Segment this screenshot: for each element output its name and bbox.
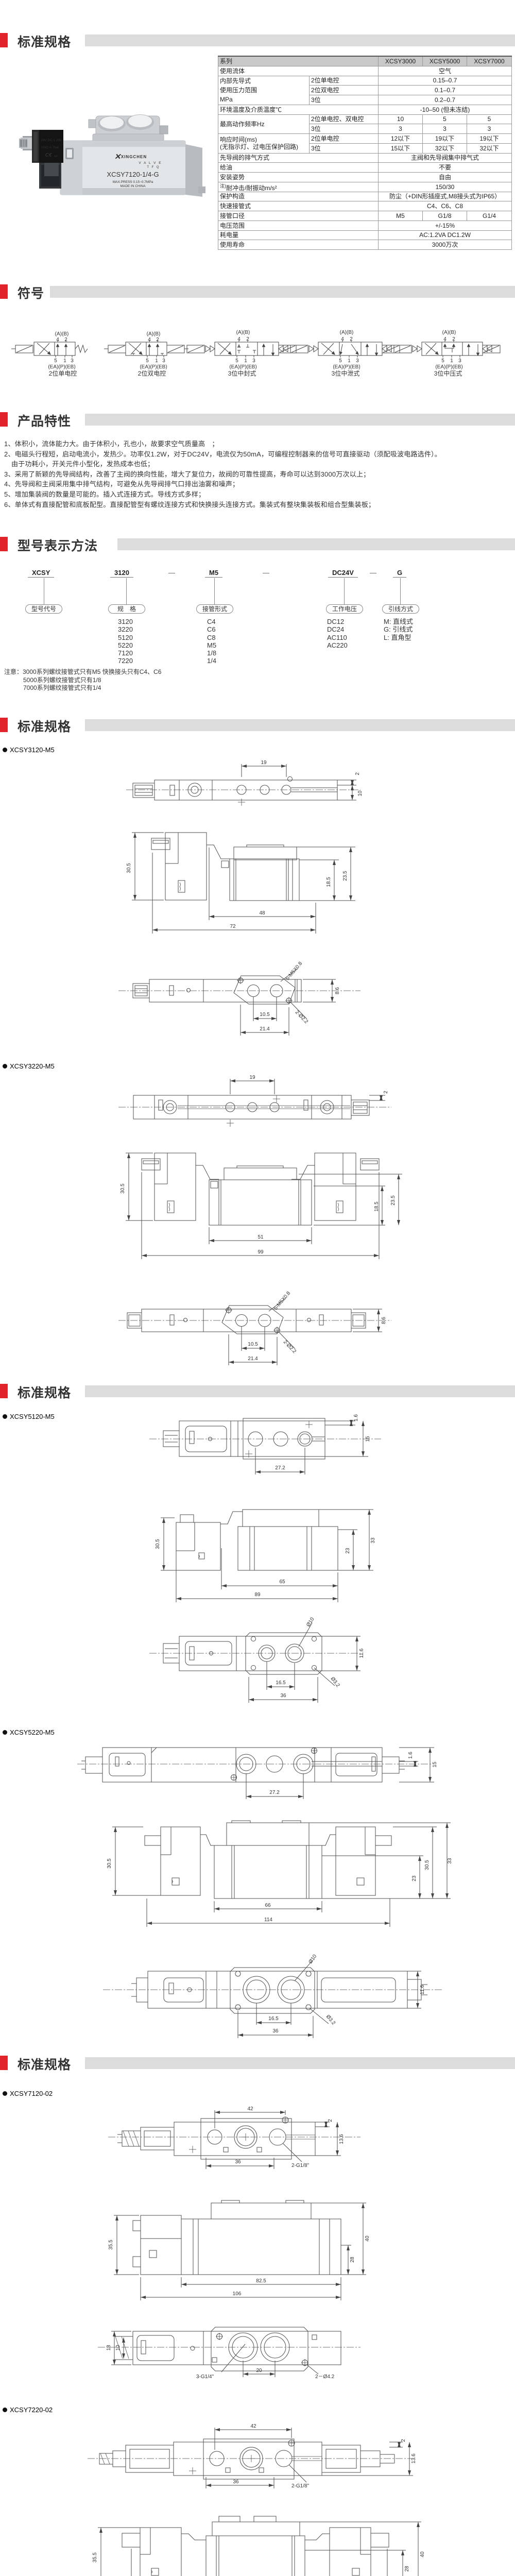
- svg-text:Ø3.2: Ø3.2: [325, 2014, 337, 2026]
- svg-text:(EA)(P)(EB): (EA)(P)(EB): [48, 364, 75, 370]
- svg-text:1: 1: [63, 358, 66, 364]
- svg-text:(A)(B): (A)(B): [442, 330, 456, 335]
- svg-text:30.5: 30.5: [424, 1860, 430, 1870]
- svg-text:5: 5: [339, 358, 342, 364]
- svg-text:XCSY7120-1/4-G: XCSY7120-1/4-G: [107, 171, 159, 178]
- svg-text:19: 19: [249, 1075, 255, 1080]
- svg-text:3: 3: [162, 358, 165, 364]
- svg-text:8.6: 8.6: [381, 1317, 387, 1324]
- svg-text:4: 4: [341, 336, 344, 342]
- svg-text:15: 15: [365, 1436, 371, 1442]
- svg-text:23.5: 23.5: [342, 871, 348, 881]
- svg-text:Ø10: Ø10: [307, 1954, 318, 1965]
- svg-text:35.5: 35.5: [108, 2240, 114, 2250]
- svg-text:40: 40: [420, 2551, 425, 2557]
- svg-text:33: 33: [447, 1858, 453, 1864]
- svg-text:72: 72: [230, 924, 236, 929]
- svg-text:42: 42: [250, 2424, 256, 2429]
- svg-text:2: 2: [355, 772, 360, 775]
- svg-text:28: 28: [404, 2566, 410, 2572]
- svg-text:15: 15: [432, 1761, 438, 1768]
- svg-text:2: 2: [452, 336, 455, 342]
- svg-text:(A)(B): (A)(B): [55, 331, 69, 337]
- svg-text:2: 2: [246, 336, 249, 342]
- svg-text:10.5: 10.5: [248, 1342, 258, 1347]
- svg-text:30.5: 30.5: [120, 1183, 126, 1194]
- svg-text:30.5: 30.5: [107, 1858, 112, 1869]
- svg-text:10.5: 10.5: [260, 1012, 270, 1018]
- svg-text:2: 2: [401, 2439, 406, 2442]
- svg-text:82.5: 82.5: [256, 2278, 266, 2284]
- svg-text:2-Ø2.2: 2-Ø2.2: [282, 1339, 297, 1354]
- svg-text:2位双电控: 2位双电控: [138, 369, 166, 377]
- svg-text:16.5: 16.5: [268, 2016, 279, 2022]
- svg-text:3位中封式: 3位中封式: [228, 369, 256, 377]
- svg-text:10: 10: [115, 2345, 121, 2351]
- svg-text:1: 1: [450, 358, 453, 364]
- svg-text:2-G1/8": 2-G1/8": [291, 2483, 310, 2489]
- svg-text:3位中压式: 3位中压式: [434, 369, 462, 377]
- svg-text:Ø10: Ø10: [305, 1616, 316, 1628]
- svg-text:5: 5: [235, 358, 238, 364]
- svg-text:4: 4: [443, 336, 447, 342]
- svg-text:19: 19: [261, 760, 267, 766]
- svg-text:2: 2: [156, 337, 159, 343]
- svg-text:42: 42: [247, 2106, 253, 2112]
- svg-text:1: 1: [155, 358, 158, 364]
- svg-text:4: 4: [56, 337, 59, 343]
- svg-text:2: 2: [64, 337, 67, 343]
- svg-text:23.5: 23.5: [390, 1195, 396, 1206]
- svg-text:4: 4: [237, 336, 241, 342]
- svg-text:66: 66: [265, 1903, 271, 1908]
- svg-text:36: 36: [235, 2159, 241, 2165]
- svg-text:(EA)(P)(EB): (EA)(P)(EB): [333, 364, 360, 370]
- svg-text:(A)(B): (A)(B): [147, 331, 161, 337]
- svg-text:36: 36: [233, 2479, 239, 2485]
- svg-text:28: 28: [350, 2257, 355, 2263]
- svg-text:EF: EF: [54, 155, 58, 158]
- svg-text:21.4: 21.4: [248, 1356, 258, 1362]
- svg-text:5: 5: [441, 358, 444, 364]
- svg-text:✕: ✕: [114, 152, 122, 161]
- svg-text:(A)(B): (A)(B): [236, 330, 250, 335]
- svg-text:106: 106: [233, 2291, 242, 2297]
- svg-text:2-Ø2.2: 2-Ø2.2: [294, 1009, 309, 1025]
- svg-text:3位中泄式: 3位中泄式: [332, 369, 360, 377]
- svg-text:13.6: 13.6: [339, 2134, 345, 2144]
- svg-text:21.4: 21.4: [260, 1026, 270, 1032]
- svg-text:30.5: 30.5: [155, 1539, 161, 1549]
- svg-text:16.5: 16.5: [276, 1680, 286, 1686]
- svg-text:13.6: 13.6: [411, 2453, 417, 2464]
- svg-text:11.6: 11.6: [420, 1985, 425, 1994]
- svg-text:T F Q: T F Q: [147, 166, 160, 169]
- svg-text:65: 65: [279, 1579, 285, 1585]
- svg-text:18.5: 18.5: [374, 1201, 380, 1212]
- svg-text:30.5: 30.5: [126, 863, 132, 873]
- svg-text:11.6: 11.6: [359, 1648, 365, 1658]
- svg-text:5-M5X0.8: 5-M5X0.8: [273, 1291, 292, 1312]
- svg-text:C€: C€: [45, 152, 52, 158]
- svg-text:4: 4: [148, 337, 151, 343]
- svg-text:27.2: 27.2: [269, 1790, 280, 1795]
- svg-text:48: 48: [259, 910, 265, 916]
- svg-text:3-G1/4": 3-G1/4": [196, 2374, 214, 2380]
- svg-text:20: 20: [256, 2368, 262, 2374]
- svg-text:18.5: 18.5: [326, 877, 332, 887]
- svg-text:2位单电控: 2位单电控: [49, 369, 77, 377]
- svg-text:35.5: 35.5: [92, 2552, 98, 2563]
- svg-text:2: 2: [350, 336, 353, 342]
- svg-text:(EA)(P)(EB): (EA)(P)(EB): [435, 364, 462, 370]
- svg-text:1.6: 1.6: [353, 1414, 359, 1421]
- svg-text:2-G1/8": 2-G1/8": [291, 2163, 310, 2168]
- svg-text:27.2: 27.2: [275, 1465, 285, 1471]
- svg-text:5: 5: [54, 358, 57, 364]
- svg-text:36: 36: [280, 1693, 286, 1699]
- svg-text:3: 3: [71, 358, 74, 364]
- svg-text:89: 89: [254, 1592, 261, 1598]
- svg-text:40: 40: [365, 2235, 370, 2242]
- svg-text:3: 3: [458, 358, 461, 364]
- svg-text:23: 23: [345, 1548, 351, 1554]
- svg-text:3: 3: [252, 358, 255, 364]
- svg-text:5-M5X0.8: 5-M5X0.8: [285, 961, 304, 982]
- svg-text:2－Ø4.2: 2－Ø4.2: [315, 2374, 335, 2380]
- svg-text:51: 51: [257, 1234, 264, 1240]
- svg-text:8.6: 8.6: [335, 987, 340, 994]
- svg-text:1: 1: [244, 358, 247, 364]
- svg-text:(A)(B): (A)(B): [340, 330, 354, 335]
- svg-text:99: 99: [257, 1249, 264, 1255]
- svg-text:½NC 0-7bar: ½NC 0-7bar: [41, 145, 59, 149]
- svg-text:Ø3.2: Ø3.2: [330, 1676, 341, 1688]
- svg-text:MAX.PRESS 0.15~0.7MPa: MAX.PRESS 0.15~0.7MPa: [113, 180, 153, 184]
- svg-text:5: 5: [146, 358, 149, 364]
- svg-text:(EA)(P)(EB): (EA)(P)(EB): [140, 364, 167, 370]
- svg-text:10: 10: [357, 790, 363, 796]
- svg-text:3: 3: [356, 358, 359, 364]
- svg-text:23: 23: [411, 1875, 417, 1882]
- svg-text:18: 18: [106, 2345, 112, 2351]
- svg-text:1.6: 1.6: [408, 1752, 414, 1759]
- svg-text:V A L V E: V A L V E: [139, 161, 162, 165]
- svg-text:114: 114: [264, 1917, 272, 1923]
- svg-text:36: 36: [272, 2028, 279, 2034]
- svg-text:XINGCHEN: XINGCHEN: [121, 155, 147, 159]
- svg-text:33: 33: [370, 1537, 376, 1544]
- svg-text:2: 2: [383, 1091, 389, 1094]
- svg-text:24V DC 1.2W: 24V DC 1.2W: [41, 139, 62, 142]
- svg-text:2: 2: [328, 2119, 333, 2122]
- svg-text:(EA)(P)(EB): (EA)(P)(EB): [229, 364, 256, 370]
- svg-text:1: 1: [348, 358, 351, 364]
- svg-text:MADE IN CHINA: MADE IN CHINA: [120, 184, 146, 188]
